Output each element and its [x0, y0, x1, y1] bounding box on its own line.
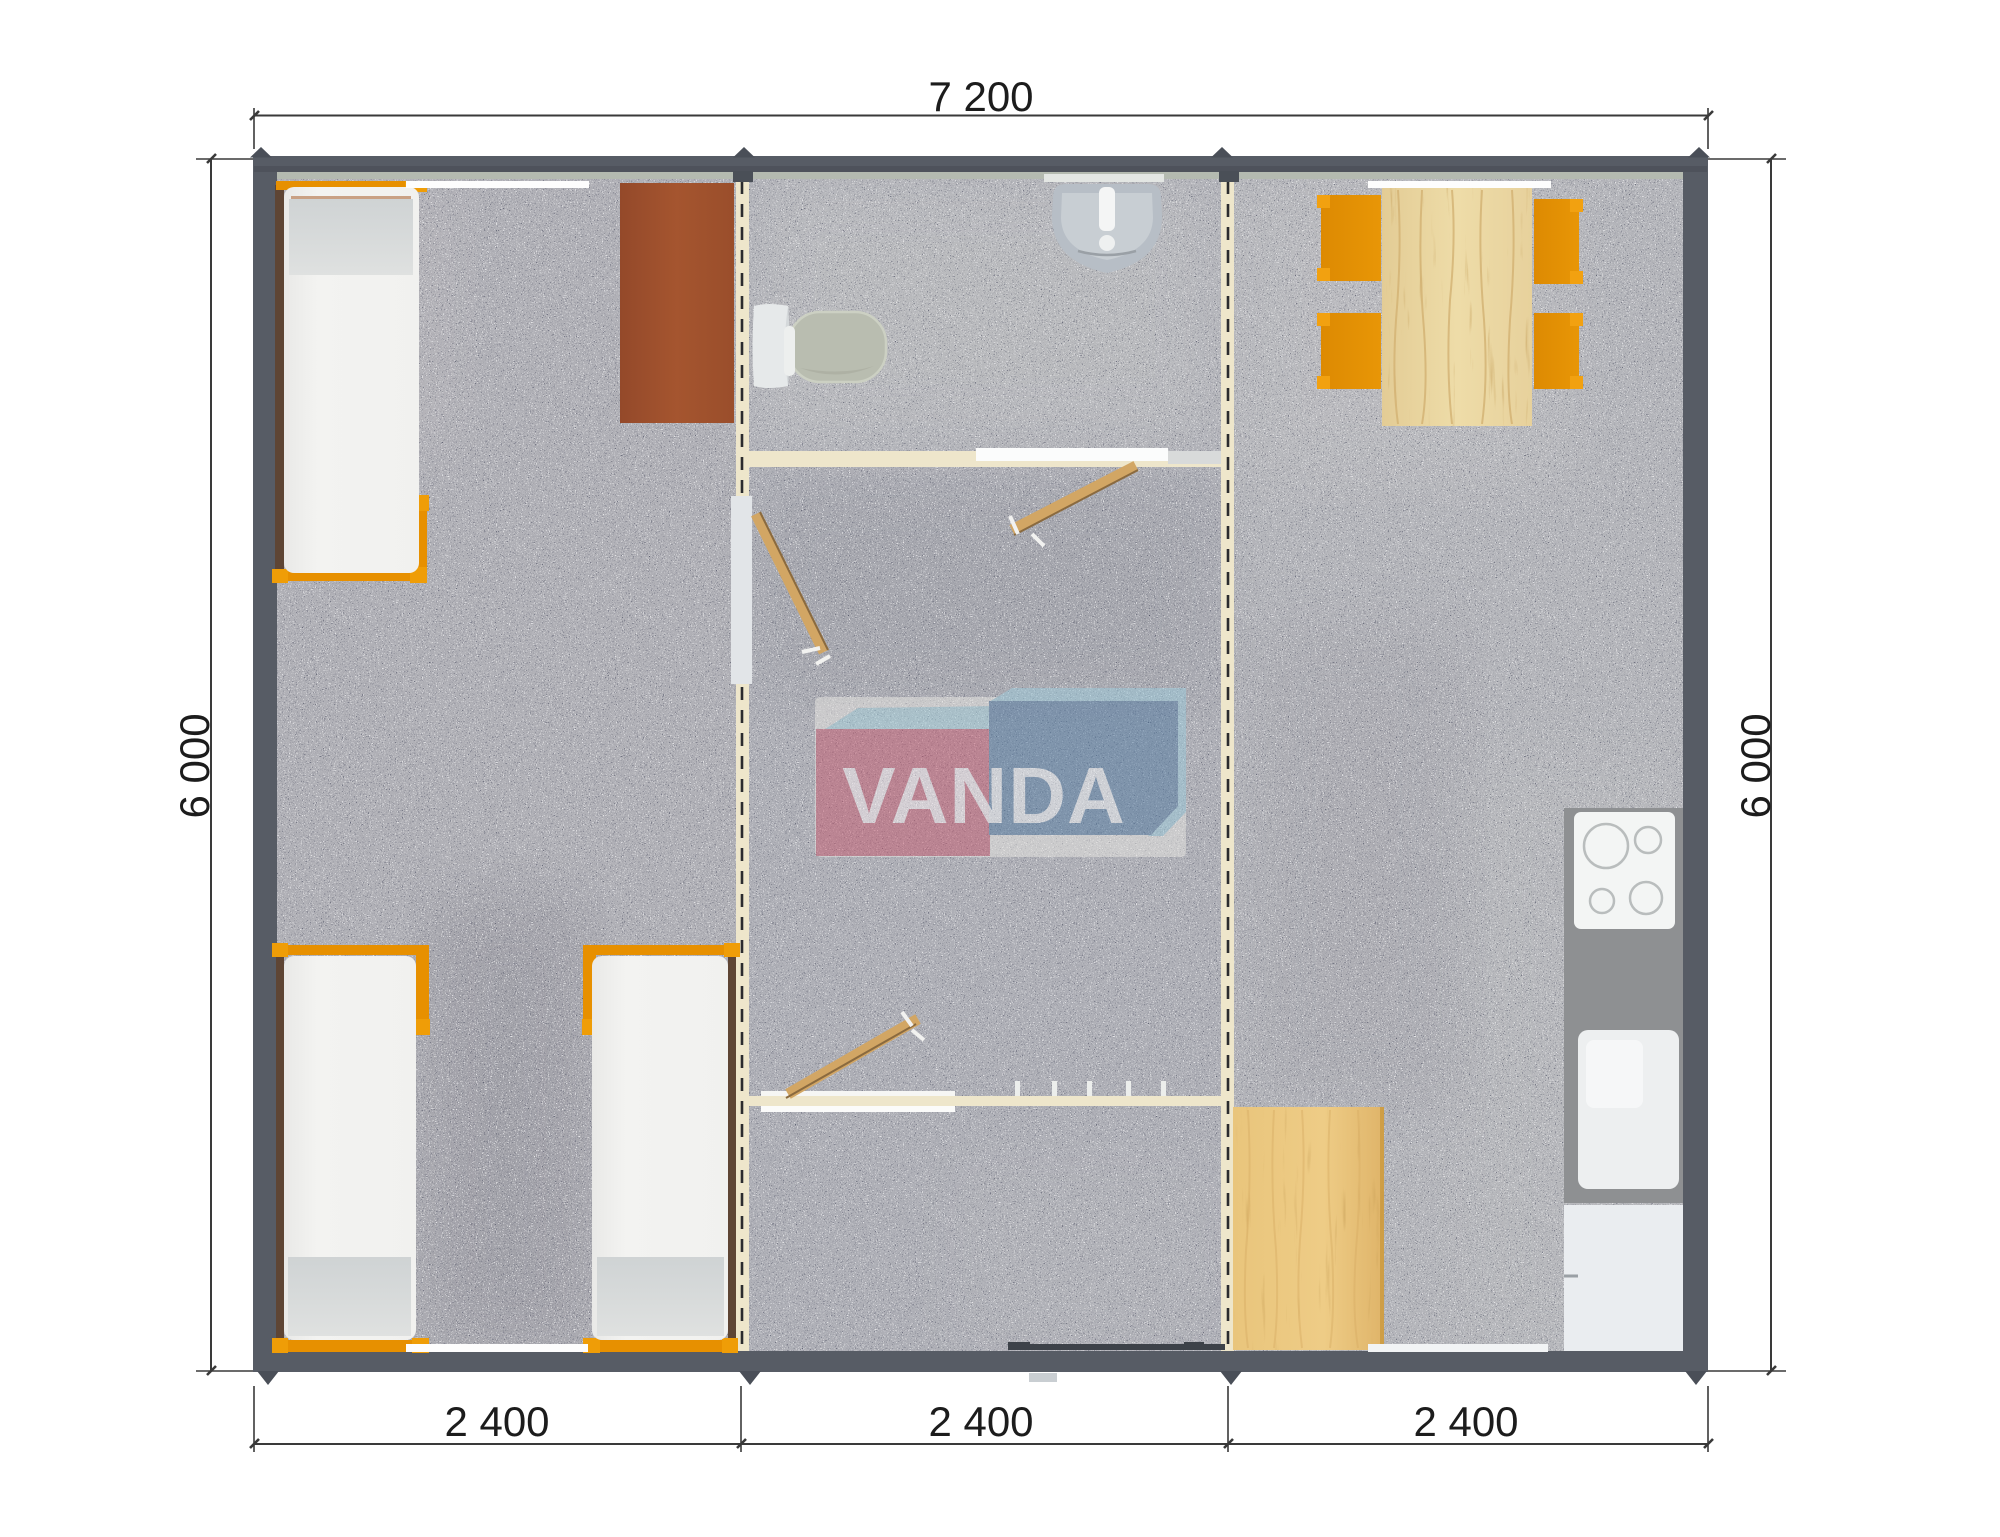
- svg-text:2 400: 2 400: [1413, 1398, 1518, 1445]
- svg-text:2 400: 2 400: [444, 1398, 549, 1445]
- svg-text:6 000: 6 000: [171, 713, 218, 818]
- svg-text:7 200: 7 200: [928, 73, 1033, 120]
- svg-text:2 400: 2 400: [928, 1398, 1033, 1445]
- svg-text:6 000: 6 000: [1732, 713, 1779, 818]
- svg-text:VANDA: VANDA: [842, 751, 1126, 840]
